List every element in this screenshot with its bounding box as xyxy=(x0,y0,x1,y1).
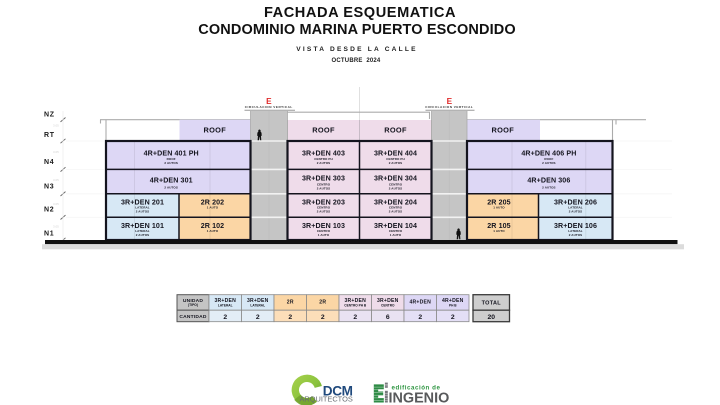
svg-text:4R+DEN 306: 4R+DEN 306 xyxy=(527,176,570,184)
svg-text:1 AUTO: 1 AUTO xyxy=(493,229,505,233)
svg-text:3.05: 3.05 xyxy=(53,202,59,206)
svg-text:1 AUTO: 1 AUTO xyxy=(390,233,402,237)
svg-text:CENTRO: CENTRO xyxy=(381,303,395,307)
svg-text:VISTA DESDE LA CALLE: VISTA DESDE LA CALLE xyxy=(296,46,417,53)
svg-text:2 AUTOS: 2 AUTOS xyxy=(389,209,403,213)
svg-text:2: 2 xyxy=(451,314,455,321)
svg-text:2 AUTOS: 2 AUTOS xyxy=(542,185,556,189)
svg-text:3R+DEN 303: 3R+DEN 303 xyxy=(302,175,345,183)
svg-text:OCTUBRE 2024: OCTUBRE 2024 xyxy=(332,58,381,64)
svg-text:2 AUTOS: 2 AUTOS xyxy=(542,161,556,165)
svg-text:1 AUTO: 1 AUTO xyxy=(493,205,505,209)
svg-text:1 AUTO: 1 AUTO xyxy=(207,205,219,209)
svg-text:2 AUTOS: 2 AUTOS xyxy=(317,209,331,213)
svg-text:3.05: 3.05 xyxy=(53,178,59,182)
svg-text:2 AUTOS: 2 AUTOS xyxy=(164,161,178,165)
svg-text:2 AUTOS: 2 AUTOS xyxy=(389,187,403,191)
svg-text:1 AUTO: 1 AUTO xyxy=(207,229,219,233)
svg-text:1 AUTO: 1 AUTO xyxy=(318,233,330,237)
svg-text:CONDOMINIO MARINA PUERTO ESCON: CONDOMINIO MARINA PUERTO ESCONDIDO xyxy=(198,22,515,38)
svg-text:ROOF: ROOF xyxy=(203,126,226,135)
svg-text:2: 2 xyxy=(353,314,357,321)
svg-text:(TIPO): (TIPO) xyxy=(188,303,198,307)
svg-text:ROOF: ROOF xyxy=(312,126,335,135)
svg-text:LATERAL: LATERAL xyxy=(250,303,265,307)
svg-text:6: 6 xyxy=(386,314,390,321)
svg-text:CIRCULACION VERTICAL: CIRCULACION VERTICAL xyxy=(425,105,473,109)
svg-text:INGENIO: INGENIO xyxy=(389,390,450,405)
svg-text:CIRCULACION VERTICAL: CIRCULACION VERTICAL xyxy=(245,105,293,109)
svg-text:2R: 2R xyxy=(287,300,294,306)
svg-text:2 AUTOS: 2 AUTOS xyxy=(569,209,583,213)
svg-text:3.05: 3.05 xyxy=(53,225,59,229)
svg-text:4R+DEN 301: 4R+DEN 301 xyxy=(150,176,193,184)
svg-text:2 AUTOS: 2 AUTOS xyxy=(136,209,150,213)
svg-text:ROOF: ROOF xyxy=(384,126,407,135)
svg-text:2R: 2R xyxy=(319,300,326,306)
svg-text:CENTRO PH B: CENTRO PH B xyxy=(344,303,367,307)
svg-text:2: 2 xyxy=(321,314,325,321)
svg-text:CANTIDAD: CANTIDAD xyxy=(179,314,206,320)
svg-text:RT: RT xyxy=(44,132,55,139)
svg-text:PH B: PH B xyxy=(449,303,457,307)
svg-text:N1: N1 xyxy=(44,231,54,238)
svg-text:2: 2 xyxy=(256,314,260,321)
svg-text:FACHADA ESQUEMATICA: FACHADA ESQUEMATICA xyxy=(264,5,456,21)
svg-text:2 AUTOS: 2 AUTOS xyxy=(164,185,178,189)
svg-text:3.05: 3.05 xyxy=(53,150,59,154)
svg-text:TOTAL: TOTAL xyxy=(482,301,502,307)
svg-text:LATERAL: LATERAL xyxy=(218,303,233,307)
svg-text:2 AUTOS: 2 AUTOS xyxy=(317,161,331,165)
svg-text:NZ: NZ xyxy=(44,112,55,119)
svg-text:2 AUTOS: 2 AUTOS xyxy=(136,233,150,237)
svg-text:4R+DEN: 4R+DEN xyxy=(410,300,432,306)
svg-text:2: 2 xyxy=(223,314,227,321)
svg-text:N3: N3 xyxy=(44,183,54,190)
svg-text:2 AUTOS: 2 AUTOS xyxy=(317,187,331,191)
svg-text:20: 20 xyxy=(487,314,495,321)
svg-text:2 AUTOS: 2 AUTOS xyxy=(389,161,403,165)
svg-text:N4: N4 xyxy=(44,159,54,166)
svg-text:N2: N2 xyxy=(44,206,54,213)
svg-text:2: 2 xyxy=(288,314,292,321)
svg-text:2 AUTOS: 2 AUTOS xyxy=(569,233,583,237)
svg-text:3.05: 3.05 xyxy=(53,124,59,128)
svg-text:2: 2 xyxy=(418,314,422,321)
svg-text:ARQUITECTOS: ARQUITECTOS xyxy=(300,395,353,404)
svg-text:ROOF: ROOF xyxy=(491,126,514,135)
svg-text:3R+DEN 304: 3R+DEN 304 xyxy=(374,175,417,183)
